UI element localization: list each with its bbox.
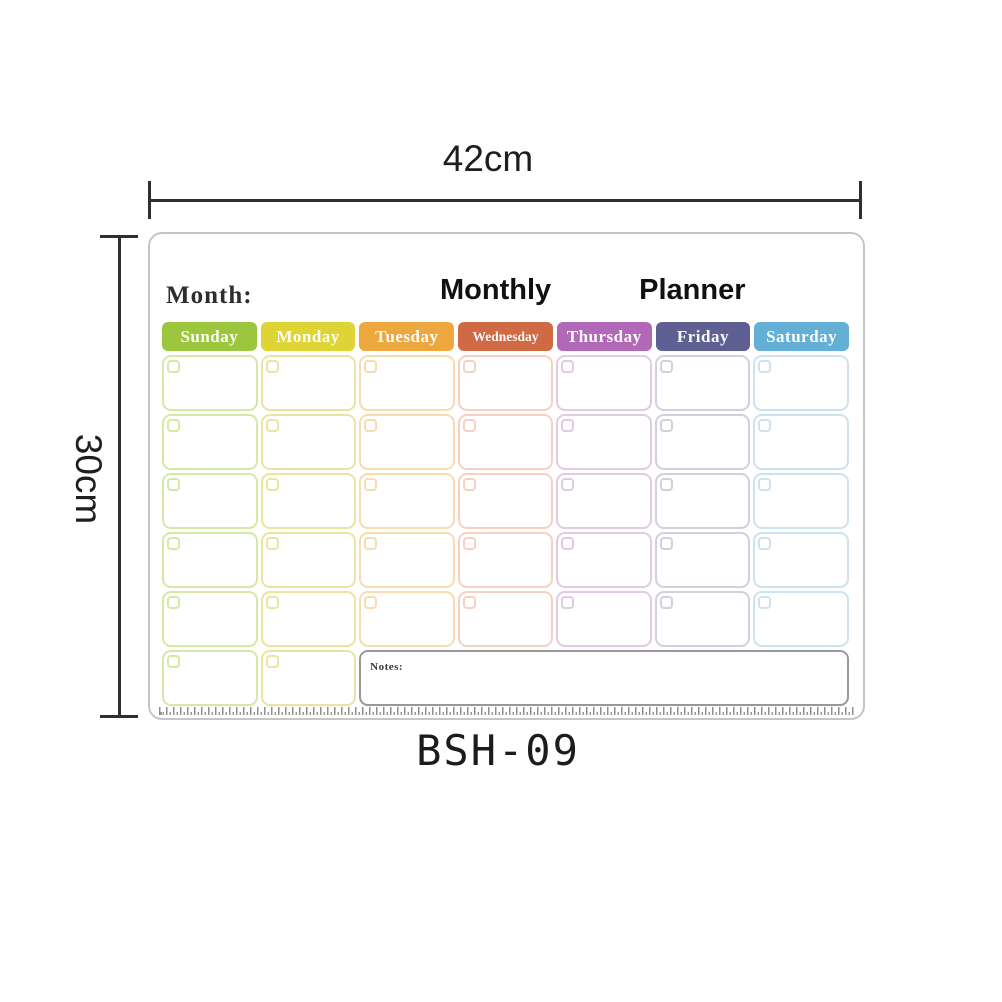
checkbox-icon xyxy=(561,478,574,491)
board-title: Monthly Planner xyxy=(440,274,746,307)
product-code: BSH-09 xyxy=(148,726,848,775)
calendar-cell xyxy=(261,414,357,470)
weekday-chip-monday: Monday xyxy=(261,322,356,351)
checkbox-icon xyxy=(463,360,476,373)
calendar-cell xyxy=(753,355,849,411)
checkbox-icon xyxy=(660,360,673,373)
month-field-label: Month: xyxy=(166,282,253,310)
board-title-word-1: Monthly xyxy=(440,274,551,307)
checkbox-icon xyxy=(266,478,279,491)
calendar-cell xyxy=(261,473,357,529)
checkbox-icon xyxy=(364,360,377,373)
weekday-chip-saturday: Saturday xyxy=(754,322,849,351)
calendar-cell xyxy=(359,414,455,470)
calendar-cell xyxy=(162,591,258,647)
calendar-cell xyxy=(162,414,258,470)
checkbox-icon xyxy=(660,478,673,491)
width-dimension-label: 42cm xyxy=(148,138,862,182)
height-dimension-text: 30cm xyxy=(67,434,109,524)
calendar-cell xyxy=(655,355,751,411)
weekday-header-row: Sunday Monday Tuesday Wednesday Thursday… xyxy=(162,322,849,351)
calendar-cell xyxy=(359,473,455,529)
checkbox-icon xyxy=(167,360,180,373)
calendar-cell xyxy=(458,473,554,529)
checkbox-icon xyxy=(167,478,180,491)
calendar-cell xyxy=(556,414,652,470)
calendar-cell xyxy=(458,355,554,411)
calendar-cell xyxy=(655,414,751,470)
checkbox-icon xyxy=(266,537,279,550)
checkbox-icon xyxy=(463,596,476,609)
checkbox-icon xyxy=(463,419,476,432)
calendar-cell xyxy=(162,355,258,411)
weekday-chip-tuesday: Tuesday xyxy=(359,322,454,351)
calendar-cell xyxy=(458,532,554,588)
checkbox-icon xyxy=(561,537,574,550)
calendar-cell xyxy=(655,532,751,588)
calendar-cell xyxy=(556,355,652,411)
calendar-cell xyxy=(556,473,652,529)
calendar-cell xyxy=(261,591,357,647)
checkbox-icon xyxy=(266,419,279,432)
calendar-cell xyxy=(655,473,751,529)
product-spec-image: 42cm 30cm Month: Monthly Planner Sunday … xyxy=(0,0,1002,1002)
calendar-cell xyxy=(162,473,258,529)
calendar-cell xyxy=(556,532,652,588)
checkbox-icon xyxy=(167,596,180,609)
checkbox-icon xyxy=(561,596,574,609)
height-dimension-line xyxy=(118,235,121,718)
checkbox-icon xyxy=(758,360,771,373)
checkbox-icon xyxy=(758,596,771,609)
height-dimension-label: 30cm xyxy=(58,240,118,718)
checkbox-icon xyxy=(561,419,574,432)
calendar-cell xyxy=(359,355,455,411)
notes-label: Notes: xyxy=(370,661,403,673)
checkbox-icon xyxy=(364,419,377,432)
checkbox-icon xyxy=(167,419,180,432)
weekday-chip-wednesday: Wednesday xyxy=(458,322,553,351)
checkbox-icon xyxy=(561,360,574,373)
monthly-planner-board: Month: Monthly Planner Sunday Monday Tue… xyxy=(148,232,865,720)
checkbox-icon xyxy=(364,478,377,491)
calendar-cell xyxy=(458,591,554,647)
checkbox-icon xyxy=(463,478,476,491)
checkbox-icon xyxy=(660,419,673,432)
checkbox-icon xyxy=(167,537,180,550)
calendar-cell xyxy=(261,532,357,588)
ruler-tick-edge xyxy=(159,707,854,715)
checkbox-icon xyxy=(660,596,673,609)
calendar-grid: Notes: xyxy=(162,355,849,706)
weekday-chip-friday: Friday xyxy=(656,322,751,351)
calendar-cell xyxy=(753,532,849,588)
weekday-chip-thursday: Thursday xyxy=(557,322,652,351)
checkbox-icon xyxy=(660,537,673,550)
calendar-cell xyxy=(261,650,357,706)
calendar-cell xyxy=(261,355,357,411)
calendar-cell xyxy=(556,591,652,647)
checkbox-icon xyxy=(758,537,771,550)
notes-box: Notes: xyxy=(359,650,849,706)
checkbox-icon xyxy=(266,596,279,609)
checkbox-icon xyxy=(758,478,771,491)
checkbox-icon xyxy=(167,655,180,668)
checkbox-icon xyxy=(266,360,279,373)
calendar-cell xyxy=(162,532,258,588)
weekday-chip-sunday: Sunday xyxy=(162,322,257,351)
calendar-cell xyxy=(655,591,751,647)
checkbox-icon xyxy=(758,419,771,432)
calendar-cell xyxy=(162,650,258,706)
calendar-cell xyxy=(753,591,849,647)
calendar-cell xyxy=(359,532,455,588)
calendar-cell xyxy=(359,591,455,647)
checkbox-icon xyxy=(364,596,377,609)
calendar-cell xyxy=(458,414,554,470)
calendar-cell xyxy=(753,473,849,529)
width-dimension-line xyxy=(148,199,862,202)
checkbox-icon xyxy=(364,537,377,550)
calendar-cell xyxy=(753,414,849,470)
checkbox-icon xyxy=(463,537,476,550)
board-title-word-2: Planner xyxy=(639,274,745,307)
checkbox-icon xyxy=(266,655,279,668)
